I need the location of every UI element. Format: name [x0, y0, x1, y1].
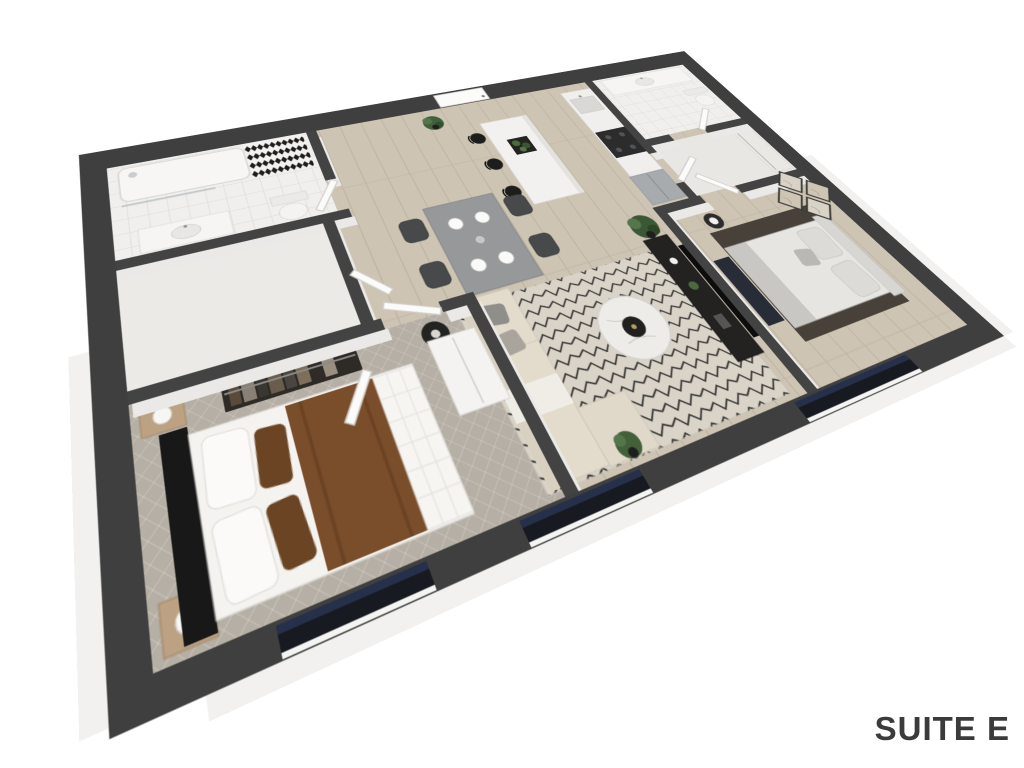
bed1-pillow: [201, 426, 258, 512]
floorplan-3d-wrapper: [99, 37, 985, 710]
floorplan-svg: [99, 37, 985, 710]
suite-label: SUITE E: [875, 710, 1010, 748]
floorplan-canvas: SUITE E: [0, 0, 1024, 768]
